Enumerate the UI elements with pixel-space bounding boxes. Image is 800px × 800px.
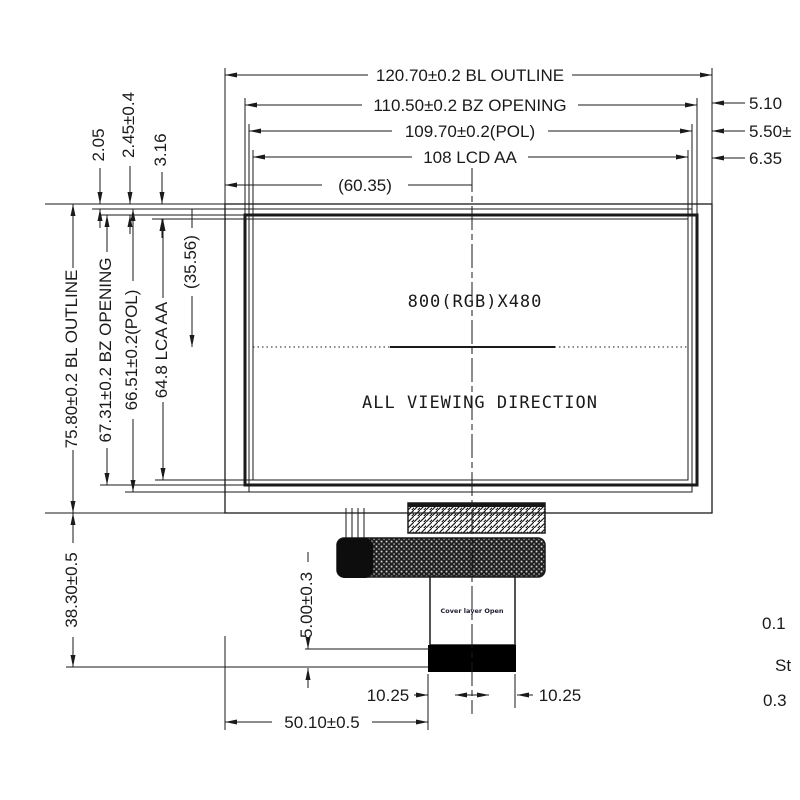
dim-left-half-label: 10.25 (367, 686, 410, 705)
dim-pol-height-label: 66.51±0.2(POL) (122, 290, 141, 411)
dim-half-aa-height-label: (35.56) (181, 235, 200, 289)
fpc-stiffener-top-bar (408, 503, 545, 507)
fpc-assembly: Cover layer Open (337, 503, 545, 672)
dim-right-1-label: 5.10 (749, 94, 782, 113)
dim-pol-width-label: 109.70±0.2(POL) (405, 122, 535, 141)
dim-module-bottom-height-label: 38.30±0.5 (62, 552, 81, 628)
edge-fragment-2: St (775, 656, 791, 675)
dim-bl-outline-height-label: 75.80±0.2 BL OUTLINE (62, 270, 81, 449)
dim-topleft-3-label: 3.16 (151, 133, 170, 166)
viewing-direction-label: ALL VIEWING DIRECTION (362, 393, 598, 413)
dim-right-3-label: 6.35 (749, 149, 782, 168)
fpc-stiffener-hatch (408, 503, 545, 533)
panel-resolution-label: 800(RGB)X480 (408, 292, 543, 312)
dim-bl-outline-width-label: 120.70±0.2 BL OUTLINE (376, 66, 564, 85)
fpc-fold-end-cap (337, 538, 373, 578)
panel-outlines (225, 204, 712, 513)
active-area-rect (253, 219, 688, 480)
drawing-canvas: Cover layer Open 800(RGB)X480 ALL VIEWIN… (0, 0, 800, 800)
dim-lcd-aa-height-label: 64.8 LCA AA (152, 301, 171, 398)
dim-right-half-label: 10.25 (539, 686, 582, 705)
top-extension-lines (225, 68, 712, 219)
dim-lcd-aa-width-label: 108 LCD AA (423, 148, 517, 167)
dim-bz-opening-width-label: 110.50±0.2 BZ OPENING (373, 96, 566, 115)
dim-topleft-1-label: 2.05 (89, 128, 108, 161)
dim-half-outline-label: (60.35) (338, 176, 392, 195)
dim-fpc-offset-label: 5.00±0.3 (297, 572, 316, 638)
bl-outline-rect (225, 204, 712, 513)
lcd-outline-drawing: Cover layer Open 800(RGB)X480 ALL VIEWIN… (0, 0, 800, 800)
dim-fpc-center-label: 50.10±0.5 (284, 713, 360, 732)
edge-fragment-1: 0.1 (762, 614, 786, 633)
dim-right-2-label: 5.50± (749, 122, 791, 141)
right-small-dims (712, 103, 745, 158)
edge-fragment-3: 0.3 (763, 691, 787, 710)
bezel-opening-rect (245, 215, 697, 485)
dim-topleft-2-label: 2.45±0.4 (119, 92, 138, 158)
top-left-small-dims (100, 166, 162, 238)
pol-rect (249, 209, 692, 492)
dim-bz-opening-height-label: 67.31±0.2 BZ OPENING (96, 257, 115, 442)
